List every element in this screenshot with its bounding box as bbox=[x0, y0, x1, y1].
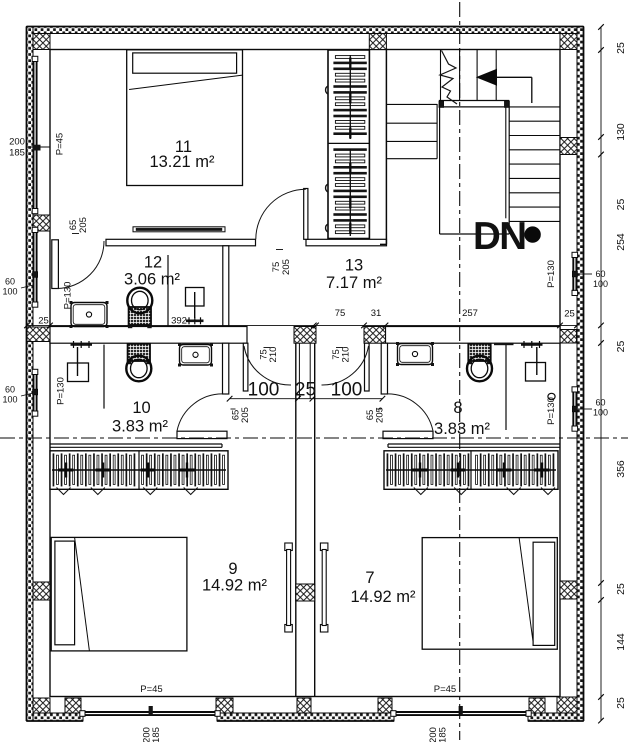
svg-text:100: 100 bbox=[248, 380, 280, 401]
svg-text:60: 60 bbox=[5, 277, 15, 287]
svg-text:205: 205 bbox=[78, 217, 89, 233]
svg-text:254: 254 bbox=[615, 233, 627, 251]
svg-text:25: 25 bbox=[615, 583, 627, 595]
svg-text:3.83 m²: 3.83 m² bbox=[112, 418, 168, 436]
svg-text:P=45: P=45 bbox=[140, 684, 162, 695]
svg-text:100: 100 bbox=[593, 279, 608, 289]
svg-text:9: 9 bbox=[228, 560, 237, 578]
svg-text:60: 60 bbox=[5, 385, 15, 395]
svg-text:P=130: P=130 bbox=[56, 377, 67, 405]
svg-text:25: 25 bbox=[615, 341, 627, 353]
svg-text:3.06 m²: 3.06 m² bbox=[124, 271, 180, 289]
svg-text:31: 31 bbox=[371, 308, 382, 319]
svg-text:210: 210 bbox=[268, 347, 279, 363]
svg-text:25: 25 bbox=[38, 316, 49, 327]
svg-text:7: 7 bbox=[365, 569, 374, 587]
svg-text:100: 100 bbox=[331, 380, 363, 401]
svg-text:25: 25 bbox=[615, 199, 627, 211]
svg-text:200: 200 bbox=[9, 137, 25, 148]
svg-text:3.83 m²: 3.83 m² bbox=[434, 420, 490, 438]
svg-text:13: 13 bbox=[345, 257, 363, 275]
svg-text:356: 356 bbox=[615, 460, 627, 478]
svg-text:13.21 m²: 13.21 m² bbox=[149, 153, 215, 171]
svg-text:25: 25 bbox=[564, 309, 575, 320]
svg-text:7.17 m²: 7.17 m² bbox=[326, 274, 382, 292]
svg-text:P=45: P=45 bbox=[55, 133, 66, 155]
svg-text:P=130: P=130 bbox=[546, 260, 557, 288]
svg-text:205: 205 bbox=[240, 407, 251, 423]
svg-text:75: 75 bbox=[335, 308, 346, 319]
svg-text:205: 205 bbox=[281, 259, 292, 275]
svg-text:60: 60 bbox=[595, 269, 605, 279]
svg-text:257: 257 bbox=[462, 308, 478, 319]
svg-text:14.92 m²: 14.92 m² bbox=[350, 588, 416, 606]
svg-text:DN: DN bbox=[473, 215, 526, 258]
svg-text:P=130: P=130 bbox=[63, 282, 74, 310]
svg-text:14.92 m²: 14.92 m² bbox=[202, 577, 268, 595]
svg-text:P=130: P=130 bbox=[546, 397, 557, 425]
svg-text:100: 100 bbox=[2, 395, 17, 405]
svg-text:P=45: P=45 bbox=[434, 684, 456, 695]
svg-text:60: 60 bbox=[595, 398, 605, 408]
svg-text:25: 25 bbox=[615, 697, 627, 709]
svg-text:100: 100 bbox=[593, 408, 608, 418]
svg-text:185: 185 bbox=[9, 148, 25, 159]
svg-text:100: 100 bbox=[2, 287, 17, 297]
svg-text:392: 392 bbox=[171, 316, 187, 327]
svg-text:25: 25 bbox=[295, 380, 316, 401]
svg-text:185: 185 bbox=[438, 727, 449, 742]
svg-text:130: 130 bbox=[615, 123, 627, 141]
svg-text:210: 210 bbox=[341, 347, 352, 363]
svg-text:144: 144 bbox=[615, 633, 627, 651]
svg-text:10: 10 bbox=[132, 399, 150, 417]
svg-text:185: 185 bbox=[151, 727, 162, 742]
svg-text:12: 12 bbox=[144, 254, 162, 272]
svg-text:25: 25 bbox=[615, 42, 627, 54]
svg-text:8: 8 bbox=[453, 399, 462, 417]
